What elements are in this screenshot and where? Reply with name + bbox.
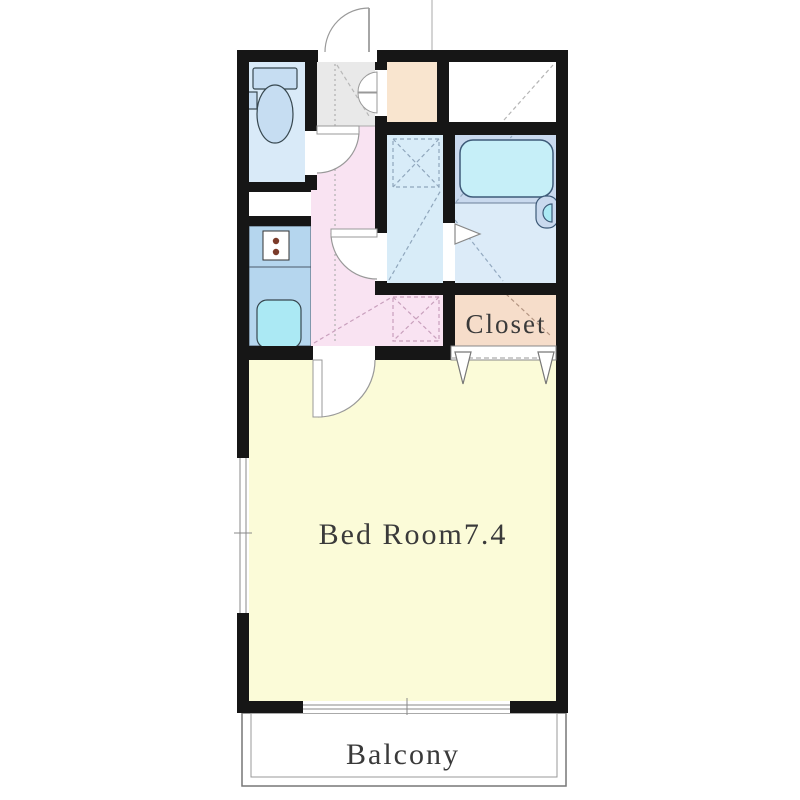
toilet-door-opening (305, 131, 317, 175)
bathtub (460, 140, 553, 197)
meter-box-niche (249, 190, 311, 216)
washroom (387, 135, 443, 283)
shoe-box (387, 62, 437, 122)
floor-plan: Bed Room7.4 Closet Balcony (0, 0, 800, 800)
wall-shoebox-right (437, 62, 449, 122)
wall-kitchen-top (237, 216, 311, 226)
stove-burner-1 (273, 238, 279, 244)
entrance-opening (318, 50, 377, 62)
bedroom-side-window (237, 458, 249, 613)
wall-toilet-bottom (237, 182, 311, 192)
bedroom-door-leaf (313, 360, 322, 417)
bedroom-door-opening (313, 346, 375, 360)
entrance-door-swing (325, 8, 369, 52)
balcony-label: Balcony (346, 738, 460, 771)
toilet-door-leaf (317, 126, 359, 134)
bedroom-label: Bed Room7.4 (319, 518, 508, 551)
floor-plan-canvas: Bed Room7.4 Closet Balcony (0, 0, 800, 800)
stove (263, 231, 289, 260)
toilet-bowl (257, 85, 293, 143)
closet-label: Closet (465, 309, 546, 339)
bathroom-door-opening (443, 223, 455, 281)
kitchen-sink (257, 300, 301, 348)
washroom-door-leaf (331, 229, 377, 237)
wall-right (556, 50, 568, 713)
wall-left (237, 50, 249, 713)
stove-burner-2 (273, 249, 279, 255)
wall-top (237, 50, 568, 62)
storage-room (449, 62, 556, 122)
wall-under-top-row (375, 122, 568, 135)
wall-closet-left (443, 295, 455, 346)
wall-under-wet-row (375, 283, 568, 295)
